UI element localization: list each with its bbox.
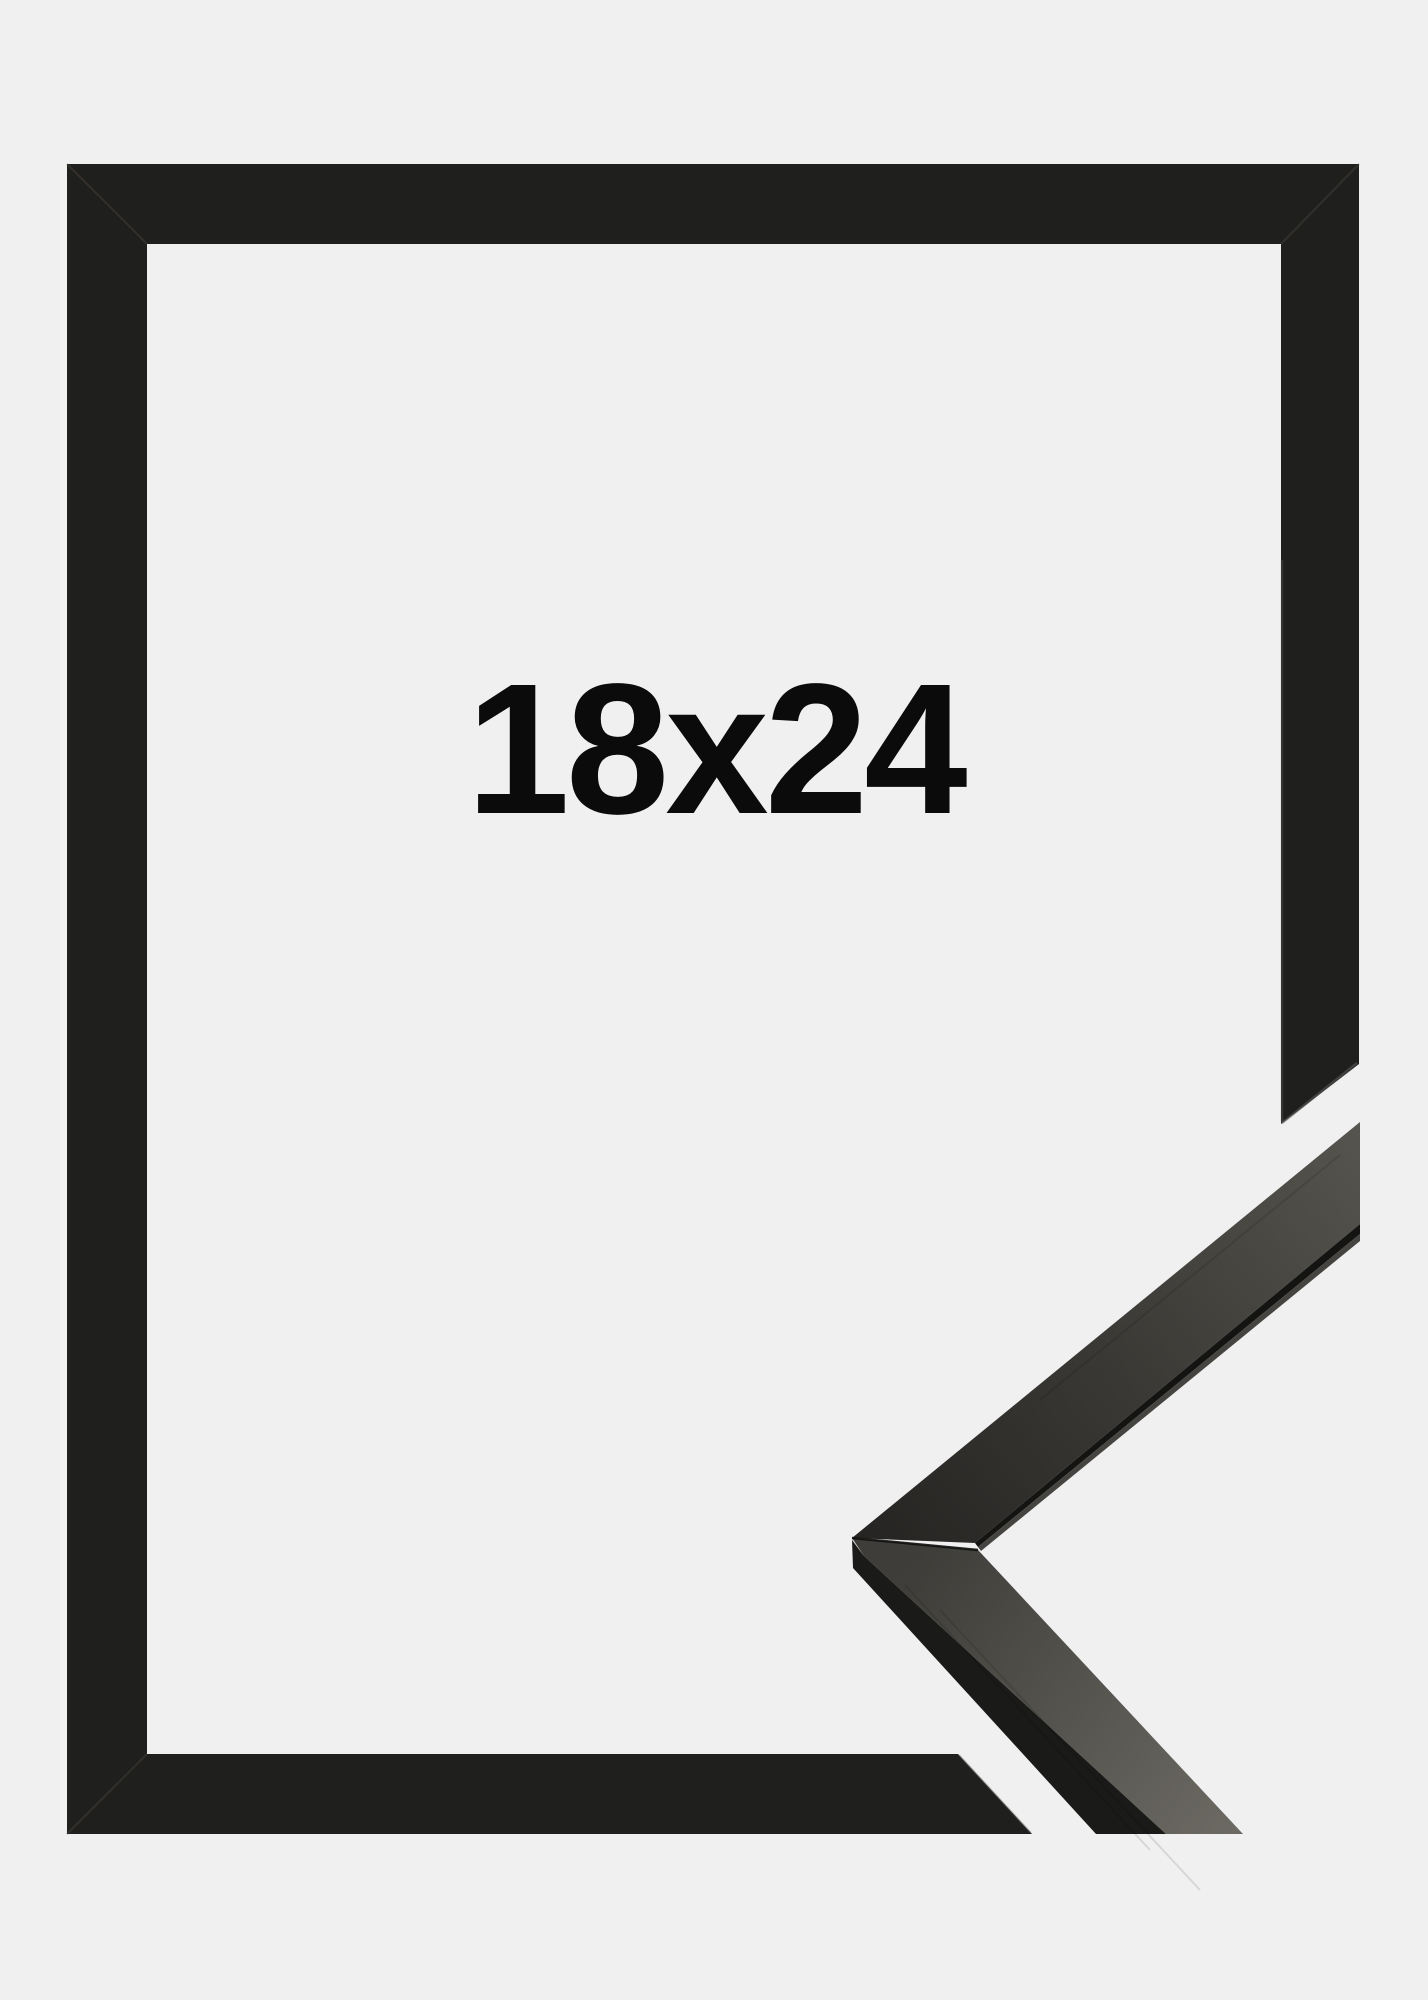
product-photo: 18x24 <box>0 0 1428 2000</box>
frame-illustration: 18x24 <box>0 0 1428 2000</box>
size-label: 18x24 <box>466 646 967 853</box>
background <box>0 0 1428 2000</box>
